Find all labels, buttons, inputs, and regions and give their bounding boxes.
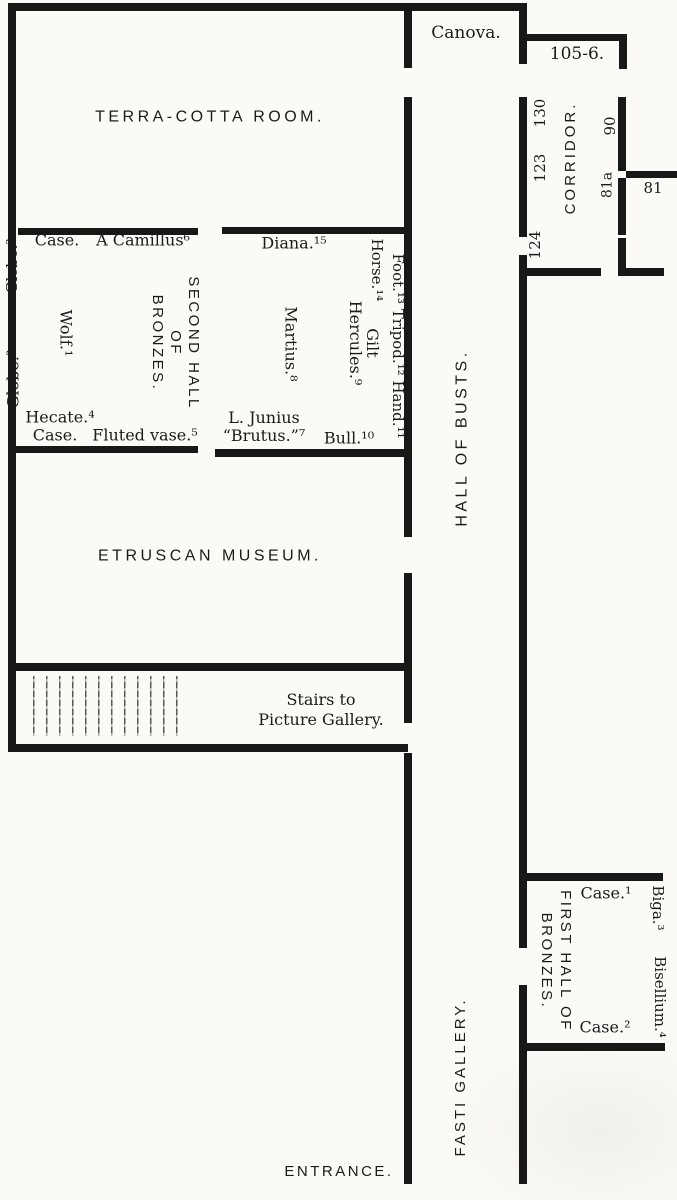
exhibit-case-top: Case. — [35, 233, 80, 250]
exhibit-bull: Bull.¹⁰ — [324, 431, 374, 448]
first-hall-line-2: BRONZES. — [537, 890, 556, 1032]
first-hall-line-1: FIRST HALL OF — [556, 890, 575, 1032]
second-hall-line-3: BRONZES. — [148, 276, 166, 409]
wall-corridor-right-upper — [618, 97, 626, 171]
label-room-105-6: 105-6. — [550, 46, 604, 64]
exhibit-wolf: Wolf.¹ — [57, 310, 74, 357]
exhibit-biga: Biga.³ — [649, 885, 665, 930]
label-canova-room: Canova. — [431, 25, 500, 43]
gilt-line: Gilt — [364, 301, 381, 386]
exhibit-foot-tripod-hand: Foot.¹³ Tripod.¹² Hand.¹¹ — [389, 253, 405, 438]
second-hall-line-1: SECOND HALL — [184, 276, 202, 409]
exhibit-case-2: Case.² — [580, 1020, 631, 1037]
wall-main-mid — [404, 573, 412, 723]
exhibit-junius-brutus: L. Junius “Brutus.”⁷ — [223, 409, 306, 445]
wall-room105-right — [619, 34, 627, 69]
wall-corridor-left-mid — [519, 255, 527, 948]
wall-room105-top — [527, 34, 626, 41]
room-number-124: 124 — [528, 231, 544, 260]
label-fasti-gallery: FASTI GALLERY. — [453, 997, 469, 1156]
label-entrance: ENTRANCE. — [284, 1164, 393, 1180]
wall-diana-bottom — [215, 449, 408, 457]
wall-canova-left — [404, 11, 412, 68]
room-number-90: 90 — [603, 116, 619, 135]
wall-firsthall-top — [527, 873, 663, 881]
wall-door81-branch — [626, 171, 677, 178]
exhibit-bisellium: Bisellium.⁴ — [651, 956, 667, 1037]
exhibit-case-bottom: Case. — [33, 428, 78, 445]
wall-room124-horiz — [618, 268, 664, 276]
wall-stairs-top — [10, 663, 408, 671]
second-hall-line-2: OF — [166, 276, 184, 409]
label-second-hall-of-bronzes: SECOND HALL OF BRONZES. — [148, 276, 202, 409]
junius-line-2: “Brutus.”⁷ — [223, 427, 306, 445]
junius-line-1: L. Junius — [223, 409, 306, 427]
room-number-130: 130 — [533, 99, 549, 128]
stairs-line-1: Stairs to — [258, 690, 383, 710]
exhibit-globe-lower: Globe.³ — [6, 350, 23, 409]
exhibit-martius: Martius.⁸ — [282, 306, 299, 381]
room-number-81a: 81a — [601, 172, 616, 198]
exhibit-globe-upper: Globe.² — [5, 238, 21, 293]
museum-floor-plan: TERRA-COTTA ROOM. Canova. 105-6. CORRIDO… — [0, 0, 677, 1200]
label-corridor: CORRIDOR. — [563, 102, 579, 215]
label-hall-of-busts: HALL OF BUSTS. — [455, 349, 472, 526]
label-terra-cotta-room: TERRA-COTTA ROOM. — [95, 110, 325, 127]
exhibit-hecate: Hecate.⁴ — [25, 410, 94, 427]
exhibit-fluted-vase: Fluted vase.⁵ — [92, 428, 198, 445]
wall-outer-top — [8, 3, 527, 11]
hercules-line: Hercules.⁹ — [347, 301, 364, 386]
exhibit-horse: Horse.¹⁴ — [368, 239, 384, 302]
room-number-123: 123 — [533, 154, 549, 183]
exhibit-case-1: Case.¹ — [581, 886, 632, 903]
wall-corridor-left-lower — [519, 985, 527, 1184]
wall-corridor-bottom — [519, 268, 601, 276]
exhibit-diana: Diana.¹⁵ — [261, 236, 326, 253]
label-first-hall-of-bronzes: FIRST HALL OF BRONZES. — [537, 890, 575, 1032]
wall-stairs-bottom — [10, 744, 408, 752]
wall-corridor-left-upper — [519, 97, 527, 237]
exhibit-gilt-hercules: Gilt Hercules.⁹ — [347, 301, 381, 386]
label-stairs: Stairs to Picture Gallery. — [258, 690, 383, 730]
wall-canova-right — [519, 11, 527, 64]
exhibit-camillus: A Camillus⁶ — [96, 233, 190, 250]
wall-corridor-right-lower — [618, 178, 626, 235]
stairs-line-2: Picture Gallery. — [258, 710, 383, 730]
wall-firsthall-bottom — [519, 1043, 665, 1051]
stairs-treads — [33, 676, 183, 736]
wall-main-lower — [404, 753, 412, 1184]
label-etruscan-museum: ETRUSCAN MUSEUM. — [98, 549, 322, 566]
wall-bronzes2-bottom — [10, 446, 198, 453]
room-number-81: 81 — [643, 181, 662, 197]
